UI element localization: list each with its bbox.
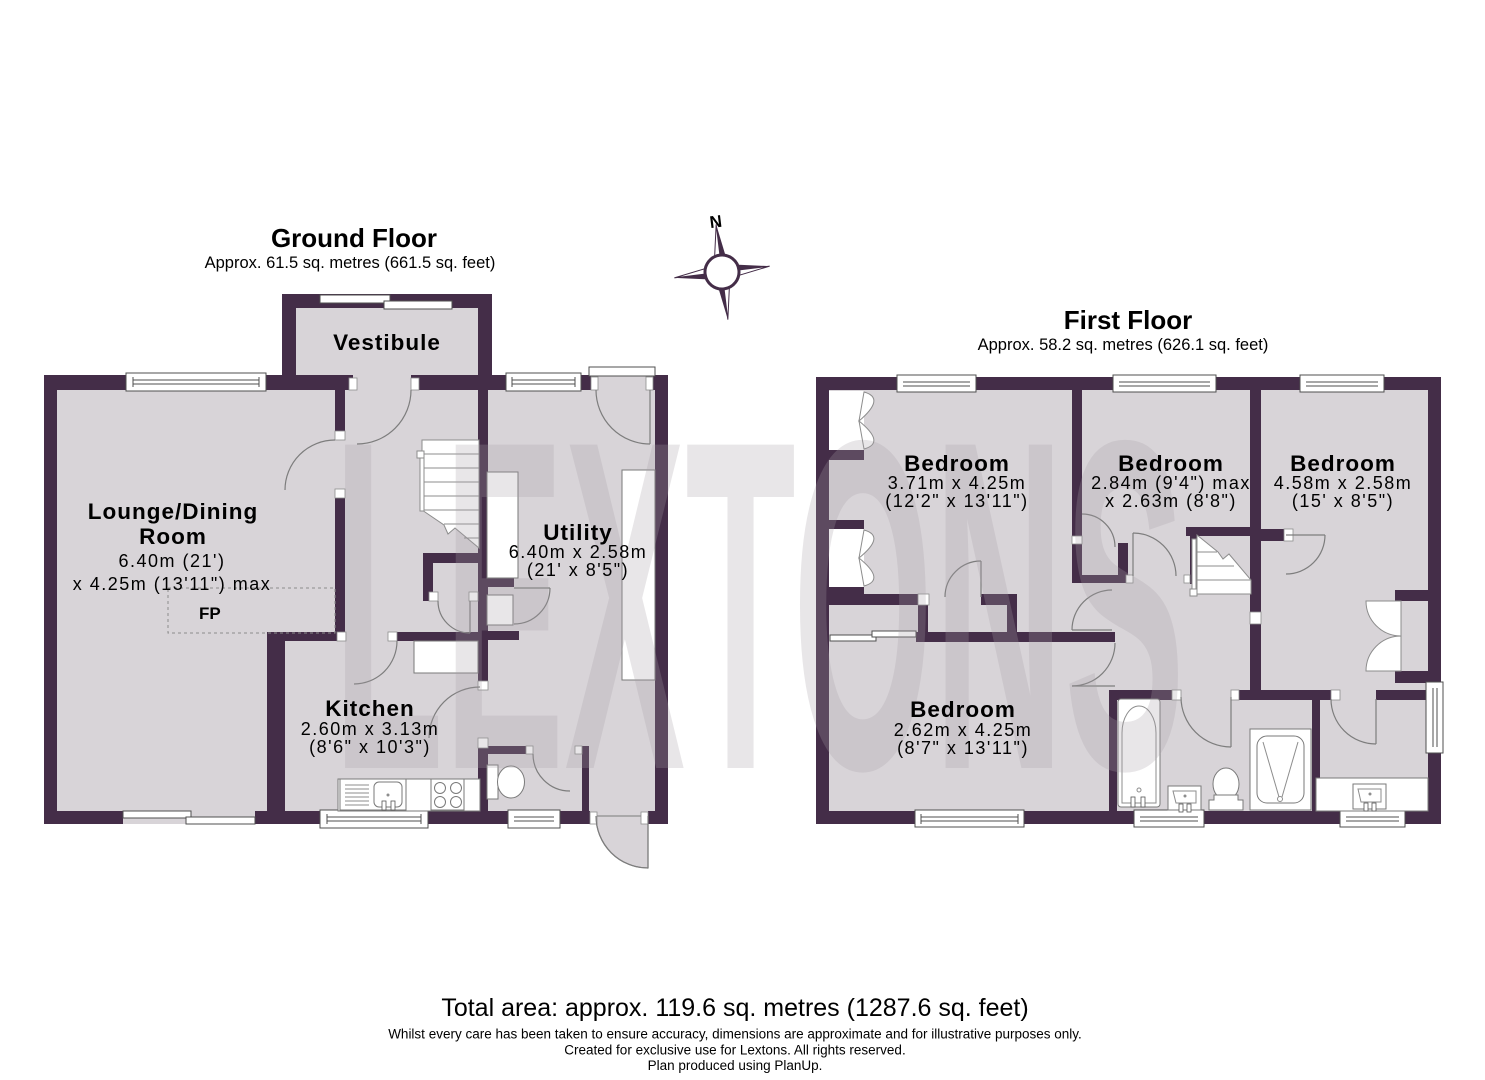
svg-text:Bedroom: Bedroom xyxy=(910,697,1016,722)
svg-text:Lounge/Dining: Lounge/Dining xyxy=(88,499,258,524)
svg-text:Ground Floor: Ground Floor xyxy=(271,223,437,253)
svg-text:6.40m x 2.58m: 6.40m x 2.58m xyxy=(509,542,648,562)
svg-text:(21' x 8'5"): (21' x 8'5") xyxy=(527,560,629,580)
svg-text:FP: FP xyxy=(199,604,221,623)
svg-text:Approx. 58.2 sq. metres (626.1: Approx. 58.2 sq. metres (626.1 sq. feet) xyxy=(978,336,1269,354)
svg-text:2.84m (9'4") max: 2.84m (9'4") max xyxy=(1091,473,1251,493)
svg-text:(15' x 8'5"): (15' x 8'5") xyxy=(1292,491,1394,511)
svg-text:Kitchen: Kitchen xyxy=(325,696,415,721)
svg-text:(8'6" x 10'3"): (8'6" x 10'3") xyxy=(309,737,431,757)
svg-text:3.71m x 4.25m: 3.71m x 4.25m xyxy=(888,473,1027,493)
svg-text:x 2.63m (8'8"): x 2.63m (8'8") xyxy=(1105,491,1237,511)
svg-text:2.60m x 3.13m: 2.60m x 3.13m xyxy=(301,719,440,739)
svg-text:(8'7" x 13'11"): (8'7" x 13'11") xyxy=(897,738,1029,758)
svg-text:N: N xyxy=(709,212,724,232)
svg-text:Whilst every care has been tak: Whilst every care has been taken to ensu… xyxy=(388,1027,1082,1042)
svg-text:Plan produced using PlanUp.: Plan produced using PlanUp. xyxy=(648,1058,823,1073)
svg-text:Approx. 61.5 sq. metres (661.5: Approx. 61.5 sq. metres (661.5 sq. feet) xyxy=(205,254,496,272)
svg-text:(12'2" x 13'11"): (12'2" x 13'11") xyxy=(885,491,1028,511)
svg-text:Total area: approx. 119.6 sq.: Total area: approx. 119.6 sq. metres (12… xyxy=(441,994,1028,1022)
svg-text:x 4.25m (13'11") max: x 4.25m (13'11") max xyxy=(73,574,272,594)
svg-text:4.58m x 2.58m: 4.58m x 2.58m xyxy=(1274,473,1413,493)
svg-text:Vestibule: Vestibule xyxy=(333,330,441,355)
svg-text:6.40m (21'): 6.40m (21') xyxy=(119,551,226,571)
svg-text:First Floor: First Floor xyxy=(1064,305,1193,335)
svg-text:Room: Room xyxy=(139,524,207,549)
svg-text:Created for exclusive use for: Created for exclusive use for Lextons. A… xyxy=(564,1043,905,1058)
svg-text:LEXTONS: LEXTONS xyxy=(333,343,1185,868)
svg-text:2.62m x 4.25m: 2.62m x 4.25m xyxy=(894,720,1033,740)
